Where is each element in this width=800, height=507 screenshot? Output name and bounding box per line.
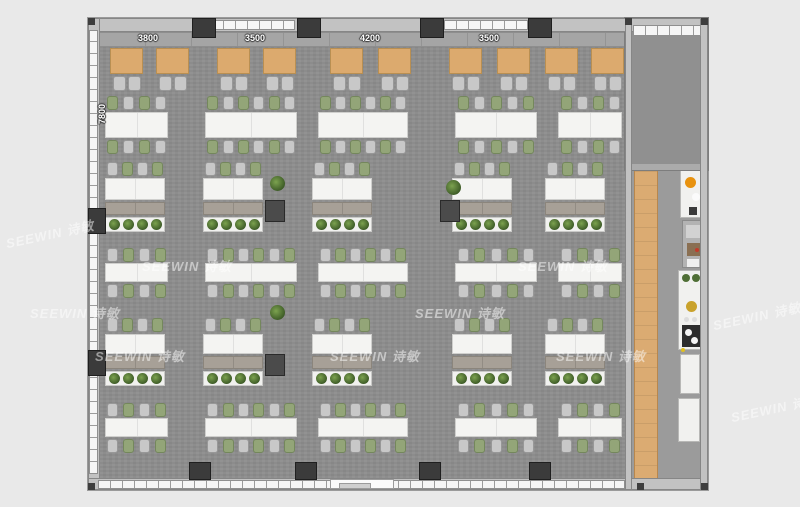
chair	[205, 318, 216, 332]
team-table	[205, 263, 297, 282]
plant-icon	[109, 373, 120, 384]
chair	[380, 96, 391, 110]
fixture-item	[682, 325, 700, 347]
chair	[220, 162, 231, 176]
team-table	[105, 263, 168, 282]
chair	[155, 439, 166, 453]
booth-table	[156, 48, 189, 74]
chair	[155, 248, 166, 262]
chair	[253, 403, 264, 417]
chair	[107, 162, 118, 176]
chair	[365, 248, 376, 262]
chair	[253, 248, 264, 262]
chair	[223, 96, 234, 110]
plant-icon	[249, 373, 260, 384]
plant-icon	[358, 373, 369, 384]
plant-icon	[470, 219, 481, 230]
chair	[454, 162, 465, 176]
chair	[207, 140, 218, 154]
wall-top	[88, 18, 708, 32]
chair	[507, 284, 518, 298]
chair	[458, 439, 469, 453]
wall-divider	[625, 18, 632, 490]
team-table	[558, 263, 622, 282]
window-strip-top	[444, 20, 528, 30]
chair	[491, 96, 502, 110]
meeting-room	[625, 18, 708, 170]
chair	[220, 318, 231, 332]
chair	[235, 318, 246, 332]
desk-table	[312, 334, 372, 354]
fixture-item	[685, 177, 696, 188]
chair	[507, 439, 518, 453]
floor-plan-page: 3800 3500 4200 3500 7800 SEEWIN 诗敏SEEWIN…	[0, 0, 800, 507]
potted-plant-icon	[270, 176, 285, 191]
chair	[238, 439, 249, 453]
chair	[152, 318, 163, 332]
chair	[592, 318, 603, 332]
chair	[380, 248, 391, 262]
booth-chair	[159, 76, 172, 91]
side-table	[265, 354, 285, 376]
plant-icon	[207, 219, 218, 230]
storage-cabinet	[105, 356, 165, 369]
plant-icon	[221, 219, 232, 230]
chair	[577, 403, 588, 417]
booth-chair	[548, 76, 561, 91]
chair	[507, 403, 518, 417]
booth-table	[330, 48, 363, 74]
chair	[329, 318, 340, 332]
chair	[365, 284, 376, 298]
wall-unit	[419, 462, 441, 480]
plant-icon	[484, 219, 495, 230]
chair	[137, 318, 148, 332]
chair	[320, 96, 331, 110]
chair	[284, 284, 295, 298]
booth-chair	[220, 76, 233, 91]
booth-chair	[281, 76, 294, 91]
chair	[499, 162, 510, 176]
chair	[562, 318, 573, 332]
chair	[561, 96, 572, 110]
wall-unit	[189, 462, 211, 480]
chair	[507, 96, 518, 110]
chair	[491, 403, 502, 417]
fixture-item	[686, 225, 700, 238]
booth-table	[497, 48, 530, 74]
chair	[269, 248, 280, 262]
chair	[458, 284, 469, 298]
chair	[335, 439, 346, 453]
plant-icon	[358, 219, 369, 230]
chair	[223, 248, 234, 262]
wall-unit	[295, 462, 317, 480]
booth-table	[591, 48, 624, 74]
pantry-fixture	[680, 170, 702, 218]
fixture-item	[689, 207, 697, 215]
fixture-item	[687, 259, 699, 267]
storage-cabinet	[203, 356, 263, 369]
sliding-door	[330, 479, 394, 489]
chair	[359, 162, 370, 176]
pantry-fixture	[680, 354, 700, 394]
chair	[561, 284, 572, 298]
booth-chair	[467, 76, 480, 91]
chair	[523, 96, 534, 110]
pantry-fixture	[682, 220, 702, 268]
wall-right	[700, 18, 708, 490]
column	[297, 18, 321, 38]
meeting-room-window	[633, 25, 701, 36]
desk-table	[452, 178, 512, 200]
chair	[223, 439, 234, 453]
potted-plant-icon	[446, 180, 461, 195]
chair	[123, 439, 134, 453]
booth-chair	[174, 76, 187, 91]
booth-chair	[609, 76, 622, 91]
desk-table	[105, 334, 165, 354]
chair	[238, 140, 249, 154]
chair	[350, 403, 361, 417]
chair	[238, 248, 249, 262]
booth-chair	[594, 76, 607, 91]
chair	[474, 248, 485, 262]
chair	[344, 162, 355, 176]
storage-cabinet	[312, 202, 372, 215]
chair	[380, 284, 391, 298]
chair	[507, 248, 518, 262]
team-table	[205, 112, 297, 138]
dimension-label-left: 7800	[97, 104, 107, 124]
plant-icon	[316, 373, 327, 384]
chair	[350, 140, 361, 154]
booth-chair	[348, 76, 361, 91]
chair	[139, 284, 150, 298]
plant-icon	[344, 219, 355, 230]
chair	[155, 140, 166, 154]
plant-icon	[221, 373, 232, 384]
chair	[207, 403, 218, 417]
chair	[320, 403, 331, 417]
chair	[269, 96, 280, 110]
chair	[107, 248, 118, 262]
dimension-label-top-1: 3800	[138, 33, 158, 43]
chair	[139, 96, 150, 110]
pantry-fixture	[678, 270, 702, 350]
chair	[123, 284, 134, 298]
chair	[577, 284, 588, 298]
chair	[454, 318, 465, 332]
column	[192, 18, 216, 38]
chair	[335, 403, 346, 417]
plant-icon	[549, 373, 560, 384]
chair	[547, 318, 558, 332]
chair	[253, 96, 264, 110]
chair	[238, 403, 249, 417]
plant-icon	[109, 219, 120, 230]
wall-corner-dot	[88, 18, 95, 25]
column	[420, 18, 444, 38]
planter-box	[105, 217, 165, 232]
desk-table	[203, 178, 263, 200]
chair	[593, 248, 604, 262]
chair	[458, 248, 469, 262]
fixture-item	[682, 274, 690, 282]
side-table	[440, 200, 460, 222]
team-table	[558, 112, 622, 138]
chair	[238, 96, 249, 110]
plant-icon	[316, 219, 327, 230]
floor-plan: 3800 3500 4200 3500 7800	[88, 18, 708, 490]
chair	[365, 403, 376, 417]
booth-table	[545, 48, 578, 74]
plant-icon	[137, 219, 148, 230]
fixture-item	[685, 329, 692, 336]
storage-cabinet	[312, 356, 372, 369]
plant-icon	[470, 373, 481, 384]
chair	[250, 318, 261, 332]
plant-icon	[235, 373, 246, 384]
team-table	[318, 263, 408, 282]
desk-table	[545, 178, 605, 200]
plant-icon	[577, 219, 588, 230]
team-table	[105, 112, 168, 138]
pantry-fixture	[678, 398, 700, 442]
chair	[122, 162, 133, 176]
chair	[320, 284, 331, 298]
plant-icon	[577, 373, 588, 384]
chair	[577, 96, 588, 110]
desk-table	[312, 178, 372, 200]
chair	[207, 284, 218, 298]
chair	[269, 439, 280, 453]
booth-table	[110, 48, 143, 74]
chair	[365, 439, 376, 453]
wall-corner-dot	[88, 483, 95, 490]
chair	[474, 403, 485, 417]
team-table	[455, 112, 537, 138]
plant-icon	[591, 373, 602, 384]
chair	[107, 403, 118, 417]
team-table	[318, 418, 408, 437]
plant-icon	[151, 219, 162, 230]
chair	[122, 318, 133, 332]
team-table	[105, 418, 168, 437]
chair	[269, 140, 280, 154]
booth-chair	[452, 76, 465, 91]
chair	[474, 439, 485, 453]
potted-plant-icon	[270, 305, 285, 320]
booth-chair	[266, 76, 279, 91]
plant-icon	[249, 219, 260, 230]
chair	[395, 96, 406, 110]
chair	[577, 140, 588, 154]
chair	[609, 248, 620, 262]
chair	[561, 403, 572, 417]
chair	[155, 403, 166, 417]
team-table	[318, 112, 408, 138]
chair	[344, 318, 355, 332]
booth-chair	[235, 76, 248, 91]
plant-icon	[498, 219, 509, 230]
chair	[250, 162, 261, 176]
planter-box	[312, 217, 372, 232]
chair	[107, 96, 118, 110]
team-table	[455, 263, 537, 282]
column	[528, 18, 552, 38]
desk-table	[452, 334, 512, 354]
chair	[284, 248, 295, 262]
chair	[269, 403, 280, 417]
booth-chair	[113, 76, 126, 91]
booth-chair	[128, 76, 141, 91]
chair	[350, 248, 361, 262]
chair	[491, 284, 502, 298]
chair	[107, 318, 118, 332]
chair	[139, 248, 150, 262]
chair	[223, 140, 234, 154]
wall-corner-dot	[625, 18, 632, 25]
chair	[474, 140, 485, 154]
chair	[523, 403, 534, 417]
chair	[253, 439, 264, 453]
storage-cabinet	[545, 202, 605, 215]
planter-box	[452, 371, 512, 386]
chair	[335, 284, 346, 298]
chair	[365, 140, 376, 154]
watermark: SEEWIN 诗敏	[711, 297, 800, 334]
plant-icon	[591, 219, 602, 230]
chair	[593, 96, 604, 110]
chair	[469, 162, 480, 176]
chair	[395, 140, 406, 154]
chair	[395, 439, 406, 453]
wall-corner-dot	[637, 483, 644, 490]
chair	[577, 318, 588, 332]
chair	[491, 439, 502, 453]
dimension-label-top-3: 4200	[360, 33, 380, 43]
fixture-item	[686, 301, 697, 312]
chair	[609, 284, 620, 298]
booth-table	[378, 48, 411, 74]
side-table	[265, 200, 285, 222]
plant-icon	[123, 219, 134, 230]
chair	[238, 284, 249, 298]
planter-box	[203, 371, 263, 386]
chair	[577, 248, 588, 262]
chair	[561, 248, 572, 262]
chair	[123, 96, 134, 110]
chair	[107, 284, 118, 298]
chair	[474, 96, 485, 110]
chair	[609, 96, 620, 110]
chair	[380, 439, 391, 453]
storage-cabinet	[105, 202, 165, 215]
chair	[335, 140, 346, 154]
chair	[155, 284, 166, 298]
chair	[359, 318, 370, 332]
chair	[562, 162, 573, 176]
booth-chair	[333, 76, 346, 91]
storage-cabinet	[545, 356, 605, 369]
planter-box	[545, 217, 605, 232]
desk-table	[203, 334, 263, 354]
chair	[577, 162, 588, 176]
booth-chair	[515, 76, 528, 91]
chair	[235, 162, 246, 176]
team-table	[205, 418, 297, 437]
chair	[314, 162, 325, 176]
chair	[139, 140, 150, 154]
booth-table	[217, 48, 250, 74]
chair	[320, 439, 331, 453]
fixture-item	[681, 348, 685, 352]
booth-chair	[500, 76, 513, 91]
chair	[593, 284, 604, 298]
chair	[523, 284, 534, 298]
chair	[458, 96, 469, 110]
storage-cabinet	[452, 356, 512, 369]
chair	[350, 439, 361, 453]
booth-chair	[396, 76, 409, 91]
plant-icon	[151, 373, 162, 384]
chair	[207, 248, 218, 262]
plant-icon	[549, 219, 560, 230]
dimension-label-top-4: 3500	[479, 33, 499, 43]
chair	[474, 284, 485, 298]
chair	[284, 439, 295, 453]
chair	[609, 140, 620, 154]
chair	[561, 439, 572, 453]
chair	[507, 140, 518, 154]
chair	[395, 248, 406, 262]
chair	[139, 403, 150, 417]
chair	[609, 439, 620, 453]
plant-icon	[456, 373, 467, 384]
chair	[253, 284, 264, 298]
planter-box	[312, 371, 372, 386]
booth-chair	[381, 76, 394, 91]
chair	[155, 96, 166, 110]
wall-corner-dot	[701, 483, 708, 490]
planter-box	[105, 371, 165, 386]
chair	[123, 248, 134, 262]
chair	[320, 248, 331, 262]
chair	[284, 140, 295, 154]
chair	[609, 403, 620, 417]
team-table	[455, 418, 537, 437]
wall-unit	[88, 208, 106, 234]
chair	[205, 162, 216, 176]
fixture-item	[692, 317, 697, 322]
storage-cabinet	[203, 202, 263, 215]
chair	[547, 162, 558, 176]
chair	[593, 140, 604, 154]
planter-box	[203, 217, 263, 232]
chair	[523, 248, 534, 262]
chair	[253, 140, 264, 154]
chair	[561, 140, 572, 154]
fixture-item	[691, 337, 698, 344]
chair	[523, 140, 534, 154]
storage-cabinet	[452, 202, 512, 215]
window-strip-top	[211, 20, 295, 30]
chair	[123, 140, 134, 154]
chair	[380, 403, 391, 417]
chair	[107, 140, 118, 154]
chair	[223, 403, 234, 417]
